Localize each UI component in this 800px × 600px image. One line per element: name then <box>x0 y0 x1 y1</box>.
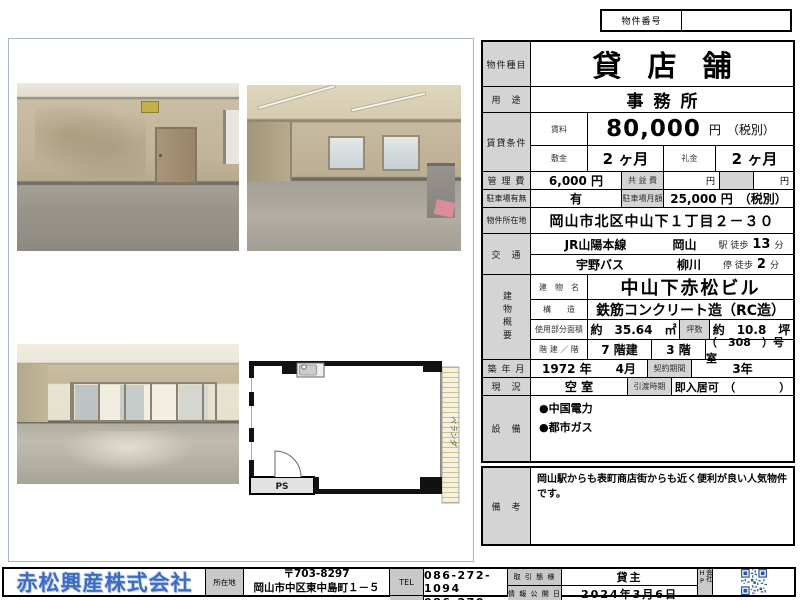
company-name: 赤松興産株式会社 <box>4 569 206 595</box>
photo-window <box>328 136 364 169</box>
traffic-minutes-2: 2 <box>757 257 766 272</box>
kitchen-faucet <box>302 365 306 369</box>
photo-panel: PS ベランダ <box>8 38 474 562</box>
floors-value: 7 階建 <box>587 340 651 359</box>
traffic-minutes-unit-1: 分 <box>774 238 783 251</box>
photo-window-frames <box>70 382 217 423</box>
traffic-walk-label-1: 駅 徒歩 <box>719 238 749 251</box>
label-handover: 引渡時期 <box>627 378 671 395</box>
photo-interior-wide <box>247 85 461 251</box>
photo-window <box>223 110 239 164</box>
photo-wall-unit <box>141 101 159 113</box>
rent-value: 80,000 <box>606 116 701 142</box>
label-management-fee: 管 理 費 <box>483 172 531 189</box>
company-zip: 〒703-8297 <box>284 568 350 582</box>
label-remarks: 備 考 <box>483 468 531 544</box>
tel-fax-block: TEL 086-272-1094 FAX 086-270-0220 <box>390 569 508 595</box>
label-parking: 駐車場有無 <box>483 190 531 207</box>
key-money-value: 2 ヶ月 <box>715 146 793 171</box>
traffic-minutes-unit-2: 分 <box>770 258 779 271</box>
label-rent: 賃料 <box>531 113 587 145</box>
parking-fee-value: 25,000 円 （税別） <box>663 190 793 207</box>
floor-number-value: 3 階 <box>651 340 705 359</box>
balcony-label: ベランダ <box>449 416 458 447</box>
remarks-text: 岡山駅からも表町商店街からも近く便利が良い人気物件です。 <box>531 468 793 544</box>
photo-interior-door <box>17 83 239 251</box>
label-tel: TEL <box>390 569 424 595</box>
photo-left-wall <box>17 364 48 423</box>
management-fee-value: 6,000 円 <box>531 172 621 189</box>
wall-connector <box>314 477 319 494</box>
other-fee-unit: 円 <box>753 172 793 189</box>
traffic-line-1: JR山陽本線 <box>541 236 651 253</box>
company-address-line: 岡山市中区東中島町１－５ <box>254 582 380 596</box>
traffic-walk-label-2: 停 徒歩 <box>723 258 753 271</box>
photo-window <box>382 135 421 172</box>
wall-top <box>249 361 442 366</box>
equipment-item: ●都市ガス <box>539 419 593 435</box>
label-building-name: 建 物 名 <box>531 275 587 299</box>
label-equipment: 設 備 <box>483 396 531 461</box>
label-lease-conditions: 賃貸条件 <box>483 113 531 171</box>
label-company-address: 所在地 <box>206 569 244 595</box>
traffic-station-2: 柳川 <box>655 256 723 273</box>
qr-code <box>741 569 767 595</box>
property-table: 物件種目 貸店舗 用 途 事務所 賃貸条件 賃料 80,000 円 （税別） 敷… <box>481 40 795 463</box>
photo-floor-gloss <box>61 431 194 473</box>
door-swing <box>275 451 301 477</box>
built-date-value: 1972 年 4月 <box>531 360 647 377</box>
label-deposit: 敷金 <box>531 146 587 171</box>
company-address: 〒703-8297 岡山市中区東中島町１－５ <box>244 569 390 595</box>
label-publish-date: 情 報 公 開 日 <box>508 586 562 600</box>
remarks-box: 備 考 岡山駅からも表町商店街からも近く便利が良い人気物件です。 <box>481 466 795 546</box>
label-location: 物件所在地 <box>483 208 531 233</box>
tel-number: 086-272-1094 <box>424 569 507 595</box>
wall-corner-topright <box>423 361 442 372</box>
room-number-value: （ 308 ）号室 <box>705 340 793 359</box>
label-key-money: 礼金 <box>663 146 715 171</box>
label-floor-area: 使用部分面積 <box>531 320 587 339</box>
label-common-fee: 共 益 費 <box>621 172 663 189</box>
label-deal-type: 取 引 態 様 <box>508 569 562 585</box>
property-number-label: 物件番号 <box>602 11 682 30</box>
label-floors: 階 建 ／ 階 <box>531 340 587 359</box>
deposit-value: 2 ヶ月 <box>587 146 663 171</box>
qr-code-cell <box>713 569 794 595</box>
use-value: 事務所 <box>531 87 793 112</box>
photo-left-wall <box>247 122 292 182</box>
traffic-minutes-1: 13 <box>752 237 770 252</box>
floor-plan: PS ベランダ <box>244 358 464 513</box>
property-type-value: 貸店舗 <box>531 42 793 86</box>
label-parking-fee: 駐車場月額 <box>621 190 663 207</box>
photo-ceiling-light <box>350 91 426 112</box>
building-name-value: 中山下赤松ビル <box>587 275 793 299</box>
label-structure: 構 造 <box>531 300 587 319</box>
wall-corner-bottomright <box>420 477 442 494</box>
label-contract-period: 契約期間 <box>647 360 691 377</box>
wall-right-thin <box>440 372 442 477</box>
common-fee-unit: 円 <box>663 172 719 189</box>
label-current-status: 現 況 <box>483 378 531 395</box>
location-value: 岡山市北区中山下１丁目２－３０ <box>531 208 793 233</box>
property-number-value <box>682 11 790 30</box>
rent-unit: 円 （税別） <box>709 121 775 138</box>
label-use: 用 途 <box>483 87 531 112</box>
ps-label: PS <box>275 482 288 492</box>
label-company-hp: 会社HP <box>698 569 713 595</box>
photo-wall-stain <box>35 107 146 178</box>
contract-period-value: 3年 <box>691 360 793 377</box>
label-traffic: 交 通 <box>483 234 531 274</box>
label-fax: FAX <box>390 596 424 600</box>
footer-bar: 赤松興産株式会社 所在地 〒703-8297 岡山市中区東中島町１－５ TEL … <box>2 567 796 597</box>
equipment-item: ●中国電力 <box>539 400 593 416</box>
label-tsubo: 坪数 <box>679 320 709 339</box>
property-number-box: 物件番号 <box>600 9 792 32</box>
floor-area-value: 約 35.64 ㎡ <box>587 320 679 339</box>
deal-info-block: 取 引 態 様 貸主 情 報 公 開 日 2024年3月6日 <box>508 569 698 595</box>
label-property-type: 物件種目 <box>483 42 531 86</box>
current-status-value: 空 室 <box>531 378 627 395</box>
traffic-station-1: 岡山 <box>651 236 719 253</box>
structure-value: 鉄筋コンクリート造（RC造） <box>587 300 793 319</box>
publish-date-value: 2024年3月6日 <box>562 586 697 600</box>
parking-value: 有 <box>531 190 621 207</box>
fee-blank-cell <box>719 172 753 189</box>
label-built-date: 築 年 月 <box>483 360 531 377</box>
photo-interior-windows <box>17 344 239 484</box>
label-building-overview: 建物概要 <box>483 275 531 359</box>
traffic-line-2: 宇野バス <box>545 256 655 273</box>
handover-value: 即入居可 （ ） <box>671 378 793 395</box>
photo-door-knob <box>159 154 162 157</box>
kitchen-counter <box>282 363 297 374</box>
photo-ceiling-light <box>257 85 336 110</box>
fax-number: 086-270-0220 <box>424 596 507 600</box>
property-sheet: 物件番号 <box>0 0 800 600</box>
deal-type-value: 貸主 <box>562 569 697 585</box>
